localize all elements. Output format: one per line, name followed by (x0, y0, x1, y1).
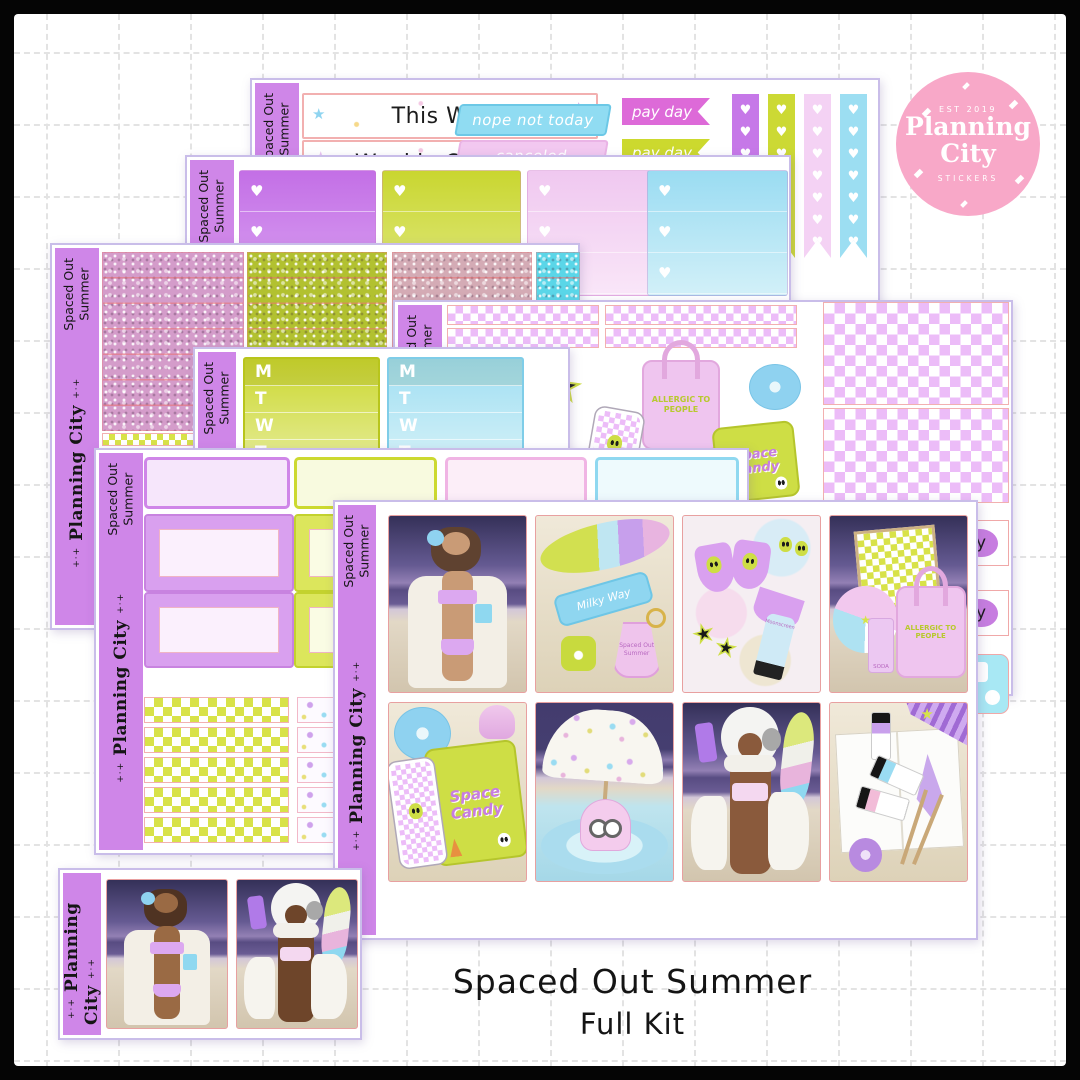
body-illustration (730, 756, 771, 873)
hair-flower-illustration (427, 530, 443, 546)
day-letter: M (399, 362, 416, 382)
heart-icon: ♥ (538, 182, 551, 200)
brand-vertical: +·+Planning City+·+ (67, 372, 87, 574)
seashell-illustration (479, 705, 515, 739)
logo-name-line2: City (940, 141, 995, 167)
brand-vertical: +·+Planning City+·+ (347, 655, 367, 857)
sticker-sheet-photo-sampler: +·+Planning City+·+ (58, 868, 362, 1040)
star-umbrella-illustration (542, 706, 667, 785)
bikini-bottom-illustration (153, 984, 182, 997)
heart-icon: ♥ (250, 223, 263, 241)
frame-box-sticker-purple (144, 514, 294, 592)
keychain-label: Spaced Out Summer (615, 642, 659, 658)
sparkle-icon (962, 82, 970, 90)
product-title-line1: Spaced Out Summer (430, 962, 835, 1001)
sunscreen-label: Moonscreen (764, 618, 795, 631)
sparkle-icon (1009, 100, 1019, 110)
checkered-washi-strip (447, 328, 599, 348)
logo-name-line1: Planning (905, 114, 1031, 140)
paint-tube-illustration (871, 712, 891, 760)
jacket-sleeve-illustration (244, 957, 275, 1019)
rocket-icon (448, 838, 462, 857)
sparkle-text: +·+ (352, 830, 362, 851)
bikini-top-illustration (438, 590, 476, 604)
grid-line-vertical (46, 14, 48, 1066)
body-illustration (278, 924, 314, 1022)
kit-name-vertical: Spaced Out Summer (196, 170, 227, 243)
flag-label: nope not today (471, 111, 595, 129)
checkered-washi-strip-green (144, 757, 289, 783)
scarf-illustration (273, 923, 319, 938)
motel-keychain-illustration: Spaced Out Summer (613, 622, 661, 679)
heart-checklist-flag-pink: ♥ ♥ ♥ ♥ ♥ ♥ ♥ (804, 94, 831, 258)
body-illustration (154, 926, 180, 1019)
checkered-washi-strip-green (144, 787, 289, 813)
checklist-row: ♥ (648, 171, 787, 212)
alien-icon (705, 555, 723, 574)
purple-flower-illustration (849, 838, 882, 872)
surfboard-illustration (535, 515, 673, 583)
jacket-sleeve-illustration (768, 792, 809, 870)
checkered-washi-strip (605, 305, 797, 325)
half-box-sticker-lavender (144, 457, 290, 509)
kit-line1: Spaced Out (201, 362, 217, 435)
star-icon: ★ (920, 705, 933, 723)
kit-line2: Summer (217, 362, 233, 435)
star-washi-strip (297, 757, 335, 783)
heart-icon: ♥ (393, 223, 406, 241)
kit-name-vertical: Spaced Out Summer (201, 362, 232, 435)
brand-name: Planning City (67, 405, 87, 541)
photo-box-surfboard-candy: Milky Way Spaced Out Summer (535, 515, 674, 693)
star-icon: ★ (312, 105, 326, 123)
brand-vertical: +·+Planning City+·+ (111, 587, 131, 789)
sheet-side-tab: Spaced Out Summer +·+Planning City+·+ (55, 248, 99, 625)
tote-label: Allergic to People (644, 395, 718, 414)
checkered-washi-strip (605, 328, 797, 348)
photo-box-alien-bikini: ★ ★ Moonscreen (682, 515, 821, 693)
sheet-side-tab: Spaced Out Summer +·+Planning City+·+ (99, 453, 143, 850)
photo-box-girl-beach (388, 515, 527, 693)
day-row: W (245, 413, 378, 440)
photo-box-umbrella-ufo (535, 702, 674, 882)
kit-line2: Summer (357, 515, 373, 588)
heart-icon: ♥ (250, 182, 263, 200)
checkered-washi-strip-green (144, 727, 289, 753)
sketchbook-illustration (835, 728, 964, 854)
star-sunglasses-icon: ★ (714, 634, 738, 662)
star-sunglasses-icon: ★ (691, 619, 717, 648)
sparkle-text: +·+ (87, 958, 97, 979)
brand-name: Planning City (111, 620, 131, 756)
kit-line2: Summer (212, 170, 228, 243)
ufo-dome-illustration (580, 799, 631, 851)
brand-name: Planning City (347, 688, 367, 824)
grid-line-horizontal (14, 1060, 1066, 1062)
checkered-block-sticker (823, 302, 1009, 405)
heart-icons: ♥ ♥ ♥ ♥ ♥ ♥ ♥ (848, 103, 860, 250)
alien-cup-illustration (475, 604, 491, 623)
tote-bag-sticker: Allergic to People (642, 360, 720, 450)
kit-line2: Summer (77, 258, 93, 331)
photo-box-art-supplies: ★ (829, 702, 968, 882)
day-letter: T (399, 389, 411, 409)
keychain-ring-illustration (646, 608, 666, 628)
heart-checklist-flag-blue: ♥ ♥ ♥ ♥ ♥ ♥ ♥ (840, 94, 867, 258)
heart-icon: ♥ (538, 223, 551, 241)
face-illustration (154, 893, 178, 912)
checkered-block-sticker (823, 408, 1009, 503)
heart-icon: ♥ (658, 223, 671, 241)
phone-illustration (247, 895, 267, 929)
bikini-cup-illustration (729, 538, 772, 590)
heart-icon: ♥ (658, 264, 671, 282)
product-mockup: Spaced Out Summer +·+Planning City+·+ ★ … (0, 0, 1080, 1080)
flag-sticker-nope-not-today: nope not today (454, 104, 612, 136)
checklist-row: ♥ (240, 171, 375, 212)
sunscreen-tube-illustration: Moonscreen (752, 612, 795, 680)
kit-name-vertical: Spaced Out Summer (61, 258, 92, 331)
heart-icon: ♥ (658, 182, 671, 200)
sparkle-text: +·+ (116, 593, 126, 614)
photo-box-helmet-selfie-small (236, 879, 358, 1029)
kit-line1: Spaced Out (105, 463, 121, 536)
body-illustration (442, 571, 472, 682)
helmet-ear-pad (306, 901, 323, 920)
earbuds-case-illustration (561, 636, 597, 671)
star-washi-strip (297, 787, 335, 813)
kit-line1: Spaced Out (196, 170, 212, 243)
bikini-bottom-illustration (441, 639, 474, 655)
checkered-washi-strip (447, 305, 599, 325)
sparkle-text: +·+ (116, 762, 126, 783)
soda-can-illustration: SODA (868, 618, 893, 673)
kit-line1: Spaced Out (341, 515, 357, 588)
milky-way-candy-bar: Milky Way (553, 570, 655, 628)
checklist-row: ♥ (648, 253, 787, 294)
sparkle-text: +·+ (72, 547, 82, 568)
tote-handle (914, 566, 948, 606)
day-row: M (389, 359, 522, 386)
tote-bag-illustration: Allergic to People (896, 586, 966, 678)
camera-lens (985, 690, 1000, 705)
sparkle-icon (960, 200, 968, 208)
brand-vertical: +·+Planning City+·+ (63, 883, 101, 1025)
alien-icon (742, 552, 759, 571)
alien-icon (408, 802, 424, 820)
frame-inner (159, 607, 279, 653)
day-row: W (389, 413, 522, 440)
tote-label: Allergic to People (898, 624, 964, 641)
checklist-row: ♥ (648, 212, 787, 253)
kit-name-vertical: Spaced Out Summer (105, 463, 136, 536)
tag-sticker-pay-day-purple: pay day (622, 98, 710, 125)
bikini-top-illustration (732, 783, 768, 801)
heart-checklist-box-blue: ♥ ♥ ♥ (647, 170, 788, 296)
heart-icons: ♥ ♥ ♥ ♥ ♥ ♥ ♥ (812, 103, 824, 250)
ufo-eye (603, 819, 622, 838)
product-title: Spaced Out Summer Full Kit (430, 962, 835, 1041)
jacket-sleeve-illustration (691, 796, 727, 871)
day-letter: T (255, 389, 267, 409)
checkered-washi-strip-green (144, 817, 289, 843)
star-washi-strip (297, 697, 335, 723)
photo-box-helmet-selfie (682, 702, 821, 882)
sheet-side-tab: +·+Planning City+·+ (63, 873, 101, 1035)
helmet-ear-pad (762, 728, 782, 751)
frame-inner (159, 529, 279, 577)
kit-line2: Summer (121, 463, 137, 536)
day-letter: W (255, 416, 274, 436)
photo-box-space-candy: Space Candy (388, 702, 527, 882)
kit-line1: Spaced Out (61, 258, 77, 331)
hair-flower-illustration (141, 892, 155, 905)
tote-handle (662, 340, 700, 380)
day-letter: M (255, 362, 272, 382)
bikini-top-illustration (150, 942, 184, 954)
photo-box-girl-beach-small (106, 879, 228, 1029)
jacket-sleeve-illustration (311, 954, 347, 1019)
star-washi-strip (297, 817, 335, 843)
soda-label: SODA (873, 664, 889, 670)
sparkle-text: +·+ (72, 378, 82, 399)
alien-icon (497, 832, 512, 847)
sparkle-icon (914, 169, 924, 179)
sparkle-icon (1015, 175, 1025, 185)
tag-label: pay day (632, 103, 692, 121)
candy-bar-label: Milky Way (575, 585, 632, 613)
checklist-row: ♥ (528, 171, 665, 212)
alien-cup-illustration (183, 954, 197, 970)
candy-label-line2: Candy (450, 800, 504, 823)
day-row: T (389, 386, 522, 413)
kit-name-vertical: Spaced Out Summer (341, 515, 372, 588)
grid-line-horizontal (14, 52, 1066, 54)
photo-box-beach-chair: ★ Allergic to People SODA (829, 515, 968, 693)
checkered-washi-strip-green (144, 697, 289, 723)
day-letter: W (399, 416, 418, 436)
sparkle-text: +·+ (352, 661, 362, 682)
product-title-line2: Full Kit (430, 1007, 835, 1041)
checklist-row: ♥ (383, 171, 520, 212)
frame-box-sticker-purple (144, 592, 294, 668)
day-row: T (245, 386, 378, 413)
heart-icon: ♥ (393, 182, 406, 200)
sticker-sheet-photo-boxes: Spaced Out Summer +·+Planning City+·+ Mi… (333, 500, 978, 940)
alien-earring-icon (779, 537, 792, 552)
star-washi-strip (297, 727, 335, 753)
alien-icon (775, 476, 788, 490)
bikini-top-illustration (280, 947, 311, 962)
scarf-illustration (724, 755, 776, 773)
hibiscus-flower-sticker (749, 364, 801, 410)
day-row: M (245, 359, 378, 386)
face-illustration (442, 532, 469, 555)
brand-logo: EST 2019 Planning City STICKERS (896, 72, 1040, 216)
grid-line-vertical (1054, 14, 1056, 1066)
alien-earring-icon (795, 541, 808, 556)
phone-illustration (694, 722, 717, 763)
sparkle-text: +·+ (67, 998, 77, 1019)
logo-subtitle: STICKERS (938, 174, 998, 183)
